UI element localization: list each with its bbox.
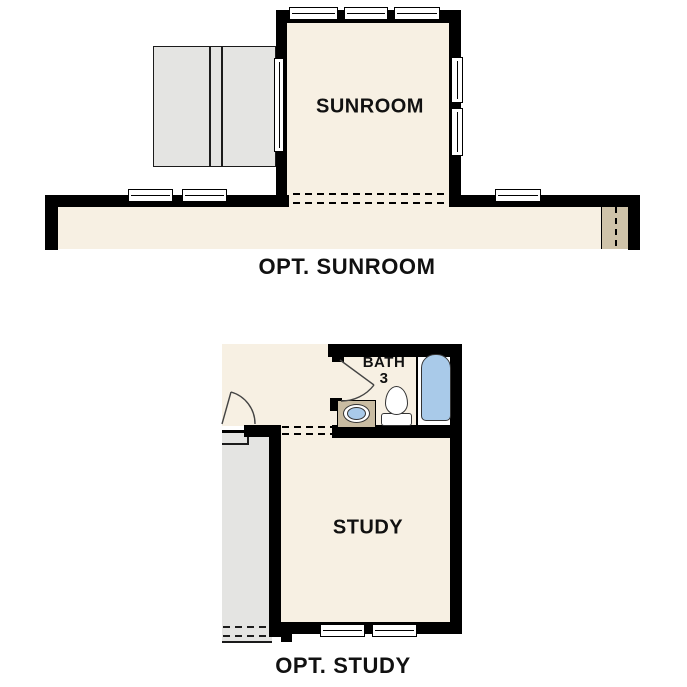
sunroom-opening-dashed-line (293, 193, 448, 195)
house-window (495, 189, 541, 202)
study-left-wall (269, 425, 281, 637)
toilet-bowl-icon (385, 386, 408, 415)
study-window (320, 624, 365, 637)
sunroom-window (274, 58, 284, 152)
house-west-wall (45, 195, 58, 250)
stair-landing-line (222, 443, 249, 445)
sunroom-window (451, 108, 463, 156)
east-exterior-wall (450, 344, 462, 634)
sunroom-window (451, 57, 463, 103)
opt-sunroom-caption: OPT. SUNROOM (258, 254, 435, 280)
stair-dashed-line (223, 626, 268, 628)
house-window (128, 189, 173, 202)
sunroom-window (289, 7, 338, 20)
sunroom-opening-dashed-line (293, 202, 448, 204)
sunroom-opening-floor (289, 195, 449, 207)
patio-deck (153, 46, 276, 167)
house-window (182, 189, 227, 202)
bath-door-jamb (332, 344, 344, 362)
sunroom-window (344, 7, 388, 20)
wall-corner-step (281, 634, 292, 642)
sunroom-window (394, 7, 440, 20)
bathtub-icon (421, 354, 451, 421)
study-window (372, 624, 417, 637)
door-threshold (222, 430, 246, 433)
staircase (222, 433, 272, 643)
main-house-floor (58, 207, 601, 249)
sunroom-label: SUNROOM (316, 96, 424, 119)
floor-plan-canvas: SUNROOM OPT. SUNROOM (0, 0, 687, 687)
hall-dashed-line (615, 207, 617, 249)
bath-label-text: BATH (363, 355, 406, 371)
house-exterior-wall-right (449, 195, 640, 207)
stair-dashed-line (223, 635, 268, 637)
bath-label: BATH 3 (363, 355, 406, 387)
study-opening-dashed-line (282, 426, 332, 428)
sink-basin-icon (347, 407, 366, 420)
study-label: STUDY (333, 517, 403, 540)
house-east-wall (628, 195, 640, 250)
opt-study-caption: OPT. STUDY (275, 653, 411, 679)
hallway-floor (222, 344, 332, 426)
study-opening-dashed-line (282, 433, 332, 435)
deck-divider-line (221, 46, 223, 167)
bath-number: 3 (363, 371, 406, 387)
deck-divider-line (209, 46, 211, 167)
